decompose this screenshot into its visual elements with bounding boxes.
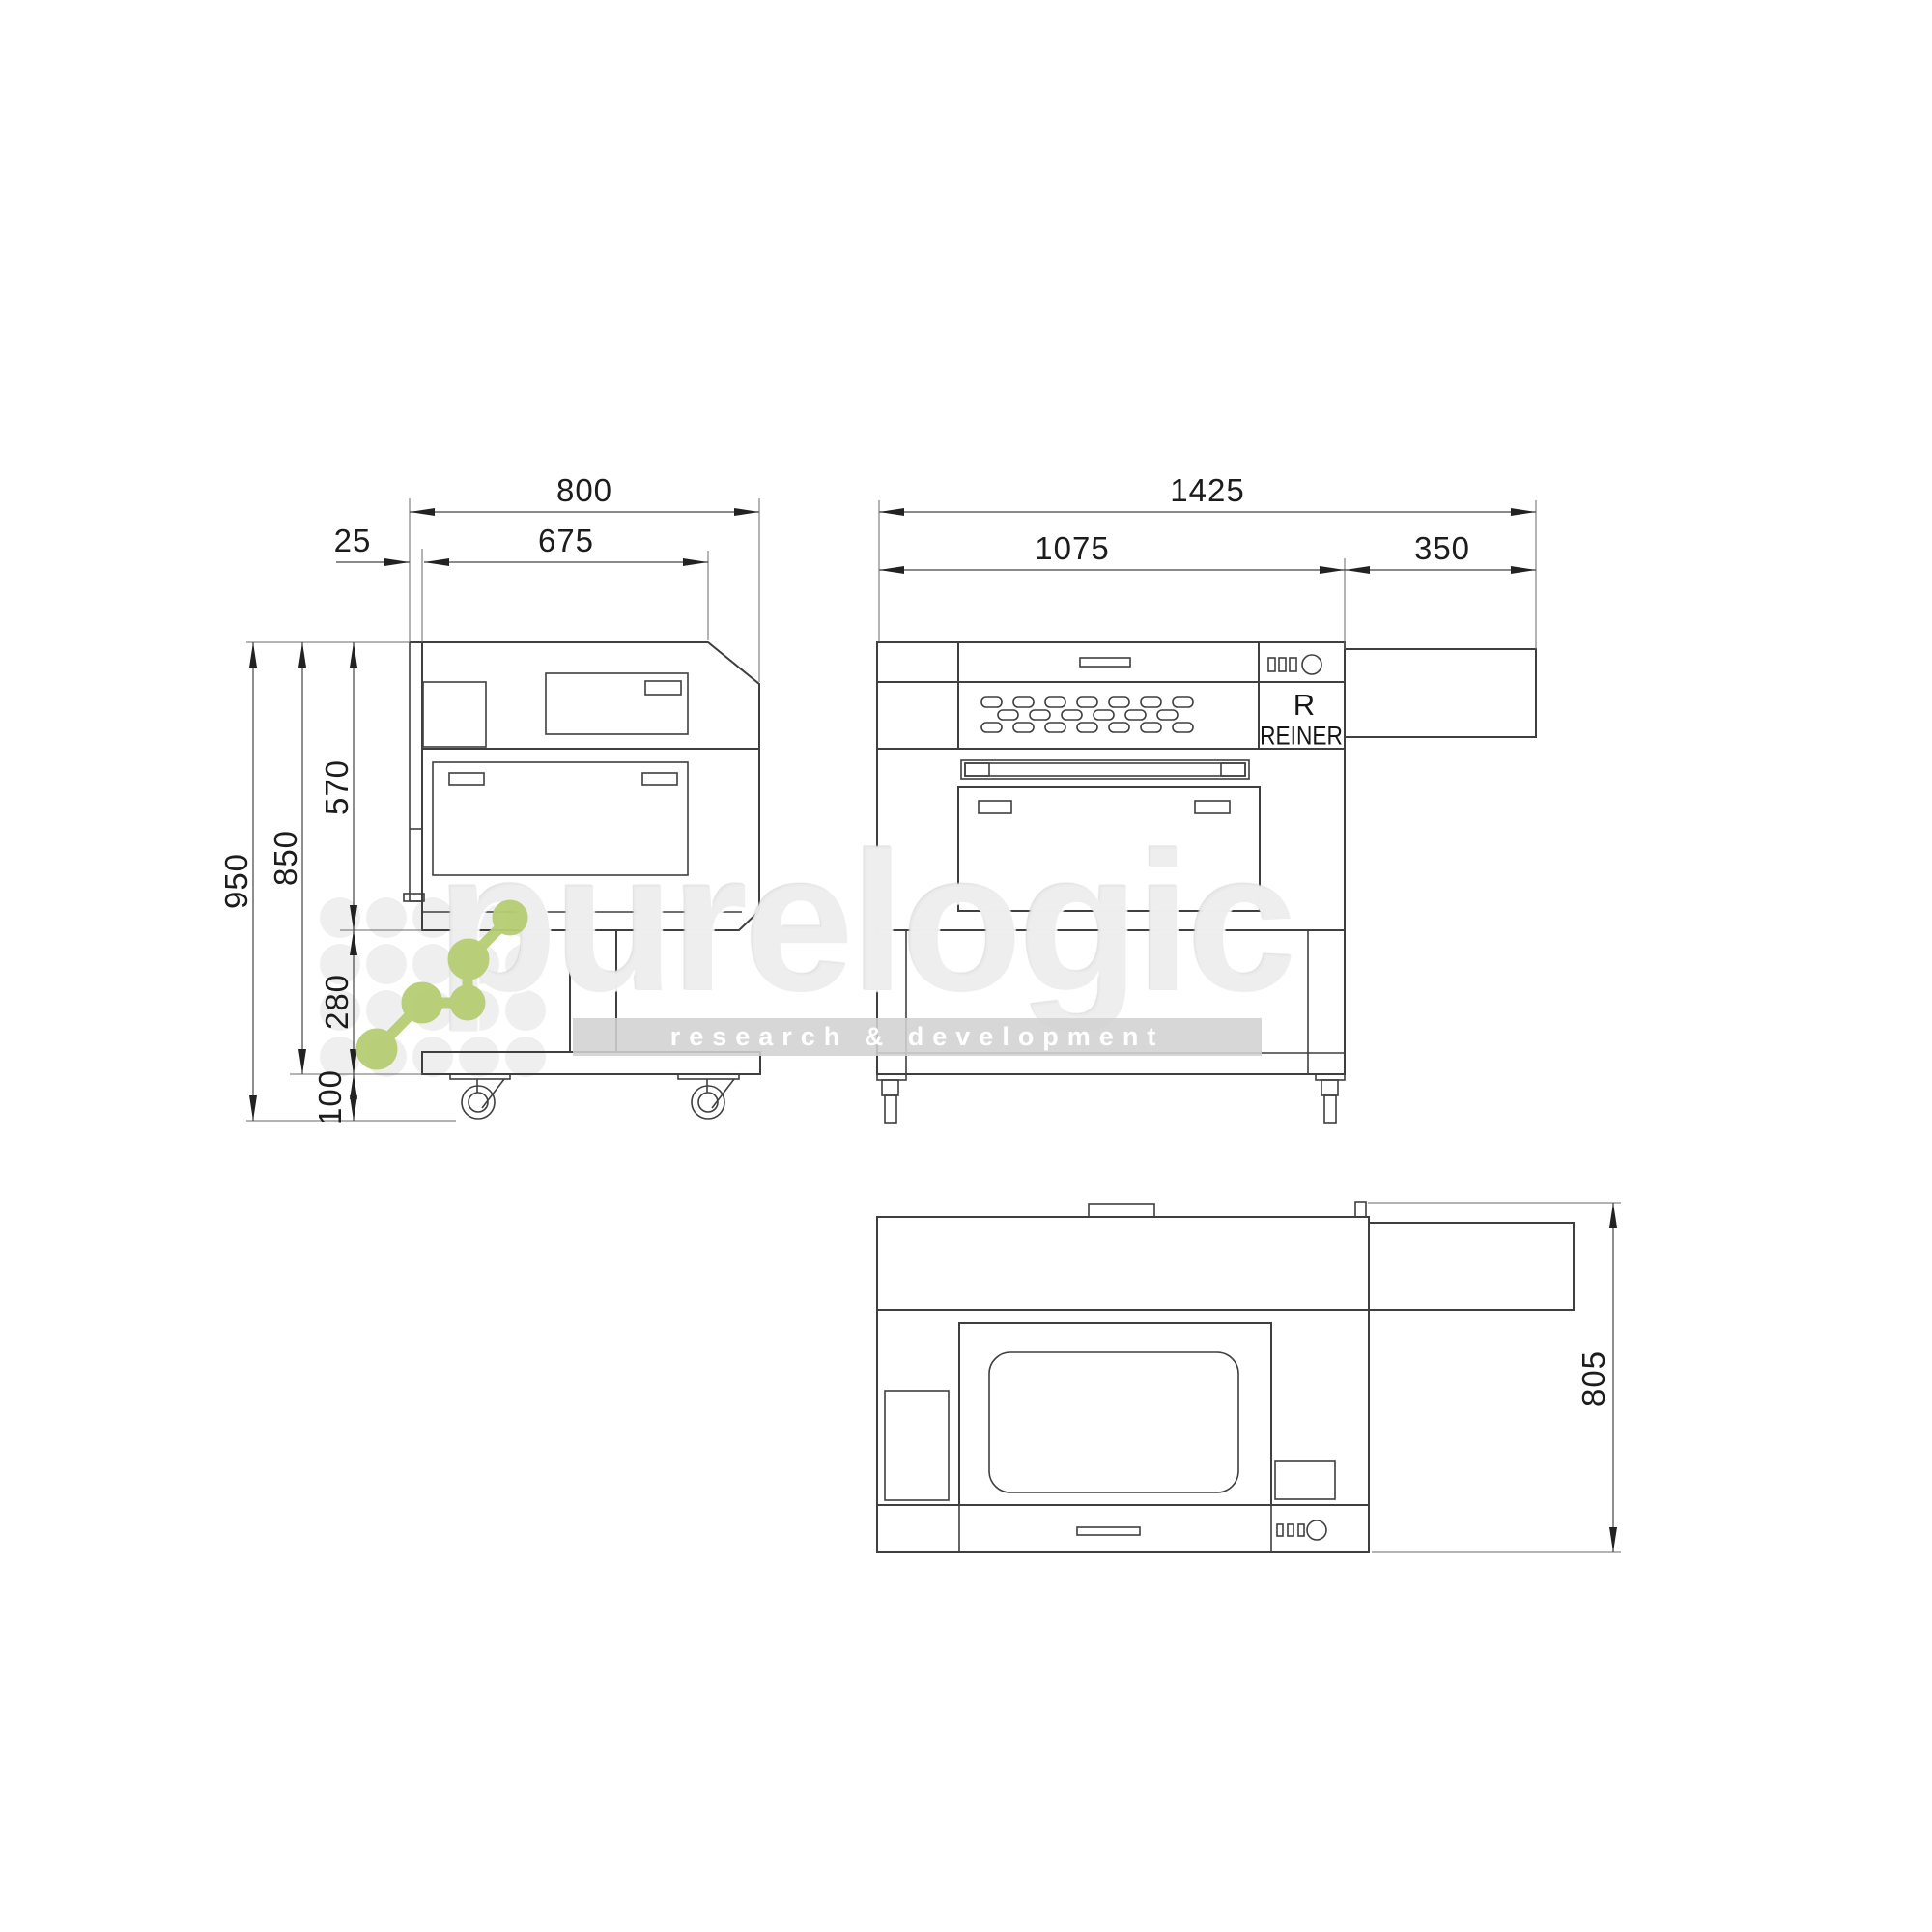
watermark-dot-grid <box>0 0 1932 1932</box>
side-upper-panel <box>546 673 688 734</box>
front-top-handle <box>1080 658 1130 667</box>
top-body-outline <box>877 1217 1369 1552</box>
dim-side-upper-width: 675 <box>538 523 594 559</box>
dim-side-caster-height: 100 <box>312 1069 349 1125</box>
dim-front-exhaust-width: 350 <box>1414 530 1470 567</box>
top-left-pocket <box>885 1391 949 1500</box>
top-right-pocket <box>1275 1461 1335 1499</box>
top-lid <box>959 1323 1271 1505</box>
side-compartment <box>423 682 486 747</box>
side-upper-panel-handle <box>645 681 681 695</box>
dim-front-overall-width: 1425 <box>1170 472 1244 509</box>
dim-side-back-offset: 25 <box>334 523 372 559</box>
top-exhaust-tab <box>1089 1204 1154 1217</box>
front-door <box>958 787 1260 911</box>
leveling-foot-right <box>1316 1074 1345 1123</box>
front-lid-bar <box>961 760 1249 779</box>
caster-wheel-right <box>692 1079 734 1119</box>
top-power-cluster <box>1277 1520 1326 1540</box>
top-exhaust-box <box>1369 1223 1574 1310</box>
dim-front-body-width: 1075 <box>1035 530 1109 567</box>
watermark-brand-text: purelogic <box>437 823 1293 1021</box>
side-door <box>433 762 688 875</box>
front-view <box>877 500 1536 1123</box>
dim-side-overall-width: 800 <box>556 472 612 509</box>
top-view <box>877 1202 1621 1552</box>
side-rail-foot <box>404 894 424 901</box>
front-exhaust-box <box>1345 649 1536 737</box>
power-indicator-cluster <box>1268 655 1321 674</box>
dim-top-depth: 805 <box>1576 1350 1612 1406</box>
watermark-logo-icon <box>0 0 1932 1932</box>
dim-side-body-height: 570 <box>319 759 355 815</box>
dim-side-total-height: 950 <box>218 853 255 909</box>
front-body-outline <box>877 642 1345 1074</box>
top-front-handle <box>1077 1527 1140 1535</box>
drawing-linework <box>0 0 1932 1932</box>
leveling-foot-left <box>877 1074 906 1123</box>
front-extension-lines <box>879 500 1536 649</box>
watermark-tagline-text: research & development <box>670 1022 1165 1051</box>
power-button-icon <box>1302 655 1321 674</box>
machine-logo-initial: R <box>1293 688 1315 723</box>
machine-logo-name: REINER <box>1260 722 1343 752</box>
dim-side-height-no-casters: 850 <box>268 830 304 886</box>
ventilation-slots <box>981 697 1193 732</box>
technical-drawing-canvas: purelogic research & development 800 675… <box>0 0 1932 1932</box>
dim-side-stand-height: 280 <box>319 974 355 1030</box>
watermark-tagline-banner: research & development <box>573 1018 1262 1056</box>
side-base-plate <box>422 1052 760 1074</box>
top-window <box>989 1352 1238 1492</box>
side-body-outline <box>410 642 759 930</box>
caster-wheel-left <box>462 1079 504 1119</box>
